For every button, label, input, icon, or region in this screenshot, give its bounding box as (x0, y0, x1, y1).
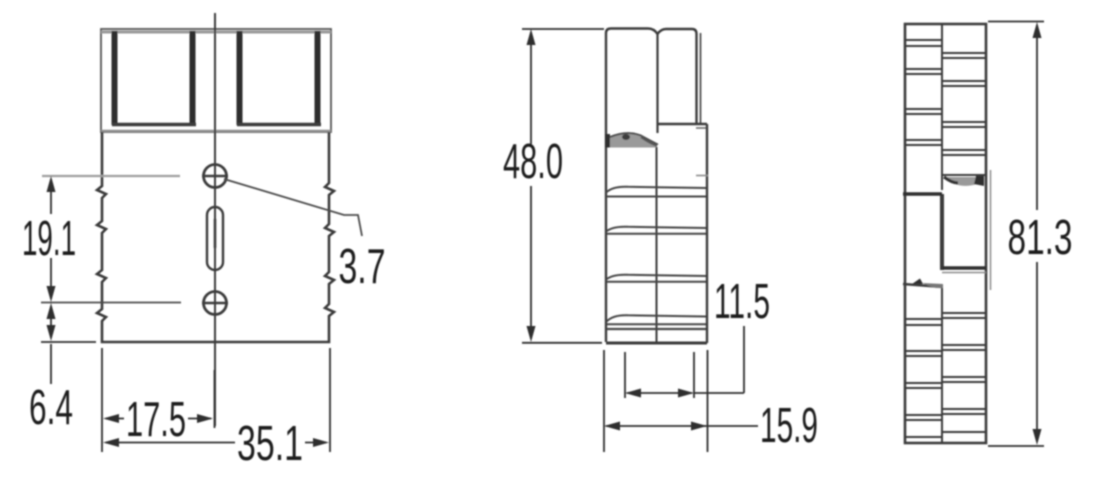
svg-text:11.5: 11.5 (714, 275, 770, 329)
svg-text:19.1: 19.1 (22, 212, 76, 266)
svg-text:35.1: 35.1 (237, 417, 303, 471)
svg-text:17.5: 17.5 (126, 393, 186, 447)
svg-text:15.9: 15.9 (760, 399, 818, 453)
svg-text:48.0: 48.0 (503, 135, 563, 189)
svg-text:81.3: 81.3 (1008, 211, 1073, 265)
svg-text:6.4: 6.4 (29, 381, 73, 435)
svg-text:3.7: 3.7 (339, 240, 386, 294)
